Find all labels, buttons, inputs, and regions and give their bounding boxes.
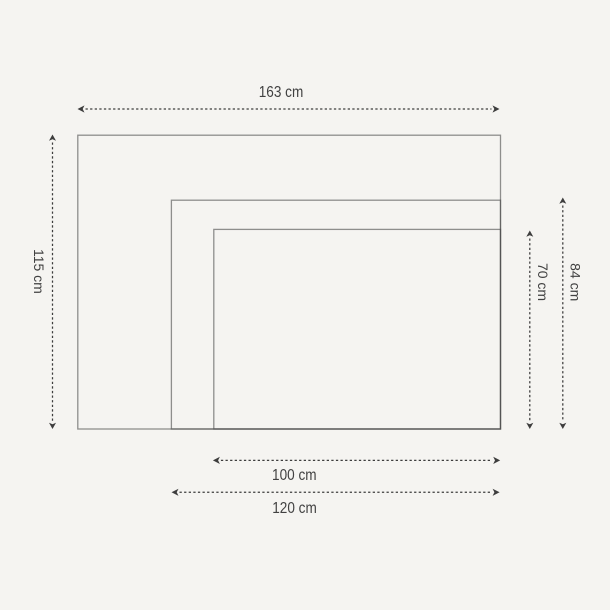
svg-text:100 cm: 100 cm — [272, 467, 317, 484]
svg-text:120 cm: 120 cm — [272, 500, 317, 517]
svg-text:163 cm: 163 cm — [259, 84, 304, 101]
svg-text:84 cm: 84 cm — [568, 263, 584, 301]
svg-text:115 cm: 115 cm — [31, 249, 47, 294]
svg-text:70 cm: 70 cm — [535, 263, 551, 301]
